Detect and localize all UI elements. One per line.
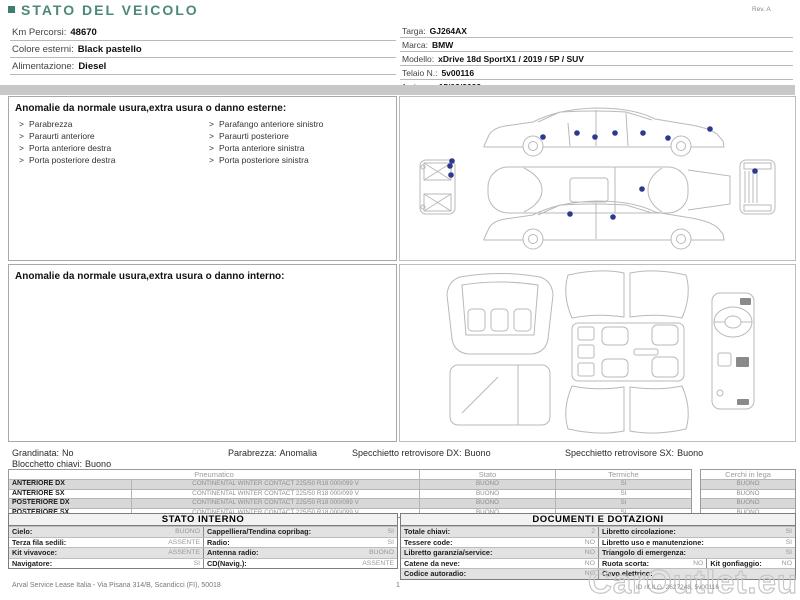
table-row: Kit vivavoce:ASSENTE Antenna radio:BUONO bbox=[9, 547, 397, 558]
vehicle-report-page: STATO DEL VEICOLO Rev. A Km Percorsi: 48… bbox=[0, 0, 800, 600]
cerchi-in-lega-column: Cerchi in lega BUONO BUONO BUONO BUONO bbox=[700, 469, 796, 518]
table-row: Terza fila sedili:ASSENTE Radio:SI bbox=[9, 537, 397, 548]
anomaly-item: >Paraurti anteriore bbox=[19, 130, 209, 142]
bullet: > bbox=[209, 119, 214, 129]
bullet: > bbox=[19, 143, 24, 153]
anomaly-item: >Porta anteriore destra bbox=[19, 142, 209, 154]
revision-label: Rev. A bbox=[752, 6, 771, 13]
info-row-targa: Targa: GJ264AX bbox=[400, 24, 793, 38]
exterior-car-diagram bbox=[400, 97, 793, 258]
anomaly-label: Parafango anteriore sinistro bbox=[219, 119, 323, 129]
bullet: > bbox=[209, 143, 214, 153]
tyre-row: ANTERIORE SX CONTINENTAL WINTER CONTACT … bbox=[9, 489, 691, 499]
footer-page-number: 1 bbox=[396, 582, 400, 589]
tyre-row: POSTERIORE DX CONTINENTAL WINTER CONTACT… bbox=[9, 498, 691, 508]
summary-specchietto-dx: Specchietto retrovisore DX:Buono bbox=[352, 448, 491, 458]
info-value: Black pastello bbox=[78, 44, 142, 55]
stato-interno-title: STATO INTERNO bbox=[9, 514, 397, 526]
anomaly-label: Paraurti anteriore bbox=[29, 131, 95, 141]
table-row: Libretto garanzia/service:NO Triangolo d… bbox=[401, 547, 795, 558]
anomaly-item: >Porta anteriore sinistra bbox=[209, 142, 394, 154]
tyres-table-header: Pneumatico Stato Termiche bbox=[9, 470, 691, 479]
bullet: > bbox=[19, 119, 24, 129]
anomaly-label: Porta anteriore sinistra bbox=[219, 143, 305, 153]
col-header-stato: Stato bbox=[419, 470, 555, 479]
cerchi-value: BUONO bbox=[701, 479, 795, 489]
watermark-id-text: ID rif.ILG. 2627248, 5v00116 bbox=[636, 584, 719, 591]
vehicle-info-right: Targa: GJ264AX Marca: BMW Modello: xDriv… bbox=[400, 24, 793, 94]
interior-anomalies-box: Anomalie da normale usura,extra usura o … bbox=[8, 264, 397, 442]
caroutlet-watermark: CarOutlet.eu bbox=[588, 563, 798, 600]
bullet: > bbox=[19, 155, 24, 165]
col-header-cerchi: Cerchi in lega bbox=[701, 470, 795, 479]
anomaly-item: >Porta posteriore destra bbox=[19, 154, 209, 166]
stato-interno-table: STATO INTERNO Cielo:BUONO Cappelliera/Te… bbox=[8, 513, 398, 569]
info-label: Targa: bbox=[402, 26, 426, 36]
info-value: 5v00116 bbox=[441, 68, 474, 78]
info-value: GJ264AX bbox=[430, 26, 467, 36]
footer-company: Arval Service Lease Italia - Via Pisana … bbox=[12, 582, 221, 589]
info-label: Modello: bbox=[402, 54, 434, 64]
summary-specchietto-sx: Specchietto retrovisore SX:Buono bbox=[565, 448, 703, 458]
summary-parabrezza: Parabrezza:Anomalia bbox=[228, 448, 317, 458]
anomaly-label: Parabrezza bbox=[29, 119, 72, 129]
section-divider bbox=[0, 85, 795, 95]
documenti-title: DOCUMENTI E DOTAZIONI bbox=[401, 514, 795, 526]
anomaly-item: >Parafango anteriore sinistro bbox=[209, 118, 394, 130]
info-row-telaio: Telaio N.: 5v00116 bbox=[400, 66, 793, 80]
info-label: Km Percorsi: bbox=[12, 27, 66, 38]
info-value: Diesel bbox=[78, 61, 106, 72]
info-value: xDrive 18d SportX1 / 2019 / 5P / SUV bbox=[438, 54, 584, 64]
tyre-row: ANTERIORE DX CONTINENTAL WINTER CONTACT … bbox=[9, 479, 691, 489]
tyres-table: Pneumatico Stato Termiche ANTERIORE DX C… bbox=[8, 469, 692, 518]
info-label: Colore esterni: bbox=[12, 44, 74, 55]
interior-car-diagram bbox=[400, 265, 793, 439]
interior-anomalies-header: Anomalie da normale usura,extra usura o … bbox=[9, 265, 396, 286]
anomaly-label: Paraurti posteriore bbox=[219, 131, 289, 141]
cerchi-value: BUONO bbox=[701, 498, 795, 508]
exterior-anomalies-list-right: >Parafango anteriore sinistro >Paraurti … bbox=[209, 118, 394, 166]
summary-blocchetto-chiavi: Blocchetto chiavi:Buono bbox=[12, 459, 111, 469]
anomaly-label: Porta anteriore destra bbox=[29, 143, 111, 153]
bullet: > bbox=[19, 131, 24, 141]
table-row: Cielo:BUONO Cappelliera/Tendina copribag… bbox=[9, 526, 397, 537]
info-row-km: Km Percorsi: 48670 bbox=[10, 24, 396, 41]
page-title: STATO DEL VEICOLO bbox=[21, 2, 199, 18]
cerchi-value: BUONO bbox=[701, 489, 795, 499]
info-value: BMW bbox=[432, 40, 453, 50]
exterior-anomalies-header: Anomalie da normale usura,extra usura o … bbox=[9, 97, 396, 118]
exterior-diagram-box bbox=[399, 96, 796, 261]
info-value: 48670 bbox=[70, 27, 96, 38]
col-header-pneumatico: Pneumatico bbox=[9, 470, 419, 479]
info-row-alimentazione: Alimentazione: Diesel bbox=[10, 58, 396, 75]
info-row-colore: Colore esterni: Black pastello bbox=[10, 41, 396, 58]
anomaly-item: >Paraurti posteriore bbox=[209, 130, 394, 142]
table-row: Totale chiavi:2 Libretto circolazione:SI bbox=[401, 526, 795, 537]
anomaly-label: Porta posteriore destra bbox=[29, 155, 115, 165]
brand-mark bbox=[8, 6, 15, 13]
summary-grandinata: Grandinata:No bbox=[12, 448, 74, 458]
anomaly-item: >Porta posteriore sinistra bbox=[209, 154, 394, 166]
info-row-modello: Modello: xDrive 18d SportX1 / 2019 / 5P … bbox=[400, 52, 793, 66]
info-label: Marca: bbox=[402, 40, 428, 50]
exterior-anomalies-list-left: >Parabrezza >Paraurti anteriore >Porta a… bbox=[19, 118, 209, 166]
info-label: Telaio N.: bbox=[402, 68, 437, 78]
anomaly-item: >Parabrezza bbox=[19, 118, 209, 130]
bullet: > bbox=[209, 131, 214, 141]
interior-diagram-box bbox=[399, 264, 796, 442]
info-label: Alimentazione: bbox=[12, 61, 74, 72]
col-header-termiche: Termiche bbox=[555, 470, 691, 479]
anomaly-label: Porta posteriore sinistra bbox=[219, 155, 309, 165]
exterior-anomalies-box: Anomalie da normale usura,extra usura o … bbox=[8, 96, 397, 261]
info-row-marca: Marca: BMW bbox=[400, 38, 793, 52]
table-row: Tessere code:NO Libretto uso e manutenzi… bbox=[401, 537, 795, 548]
table-row: Navigatore:SI CD(Navig.):ASSENTE bbox=[9, 558, 397, 569]
vehicle-info-left: Km Percorsi: 48670 Colore esterni: Black… bbox=[10, 24, 396, 75]
bullet: > bbox=[209, 155, 214, 165]
